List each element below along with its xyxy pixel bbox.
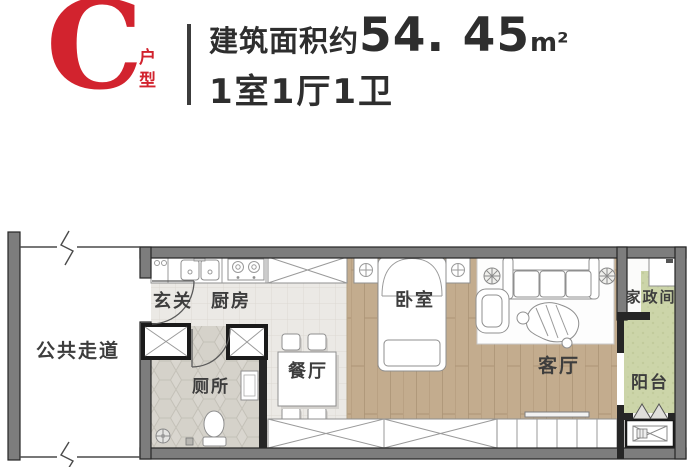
- counter-cabinet: [268, 257, 347, 283]
- bed: [378, 257, 446, 371]
- ac-unit: [626, 420, 674, 447]
- living-utility-wall: [617, 247, 627, 320]
- bottom-wall: [140, 448, 686, 459]
- top-wall: [140, 247, 686, 258]
- utility-room: [649, 257, 675, 286]
- folding-door-stub: [624, 413, 633, 420]
- gas-stove: [228, 259, 264, 280]
- utility-balcony-wall: [617, 312, 650, 320]
- room-label-living: 客厅: [538, 354, 580, 377]
- tv: [525, 412, 589, 417]
- toilet-bowl: [204, 411, 224, 437]
- left-wall-upper: [140, 247, 151, 278]
- kitchen-counter: [151, 257, 347, 283]
- room-label-utility: 家政间: [625, 288, 676, 306]
- dining-chair: [282, 334, 300, 350]
- room-label-kitchen: 厨房: [211, 290, 251, 312]
- balcony-wall-stub: [617, 405, 624, 459]
- balcony-wall-stub: [617, 320, 624, 353]
- room-label-balcony: 阳台: [631, 372, 669, 393]
- wall-break-symbol: [61, 231, 73, 265]
- sofa: [503, 257, 599, 299]
- side-table: [517, 312, 529, 324]
- room-label-entry: 玄关: [153, 290, 193, 312]
- room-label-dining: 餐厅: [287, 360, 328, 382]
- living-furniture: [476, 255, 615, 348]
- folding-door-stub: [668, 413, 675, 420]
- toilet-tank: [203, 437, 226, 446]
- floorplan-drawing: 公共走道 玄关 厨房 厕所 餐厅 卧室 客厅 家政间 阳台: [0, 0, 692, 467]
- wardrobe: [268, 419, 497, 448]
- corridor-wall: [8, 232, 20, 460]
- shower-head: [156, 429, 170, 443]
- armchair: [476, 289, 509, 333]
- room-label-toilet: 厕所: [192, 377, 230, 397]
- side-table: [562, 338, 572, 348]
- floor-drain: [186, 438, 193, 445]
- blanket-fold: [384, 340, 440, 366]
- room-label-corridor: 公共走道: [36, 339, 120, 362]
- dining-chair: [308, 334, 326, 350]
- floorplan-page: C 户型 建筑面积约54. 45m² 1室1厅1卫: [0, 0, 692, 467]
- washer-panel: [666, 259, 673, 263]
- wall-break-symbol: [61, 442, 73, 467]
- room-label-bedroom: 卧室: [395, 289, 435, 311]
- floor-plant: [599, 268, 615, 284]
- floor-plant: [484, 268, 500, 284]
- right-wall: [675, 247, 686, 459]
- toilet-dining-wall: [259, 355, 267, 448]
- balcony-floor: [624, 320, 675, 413]
